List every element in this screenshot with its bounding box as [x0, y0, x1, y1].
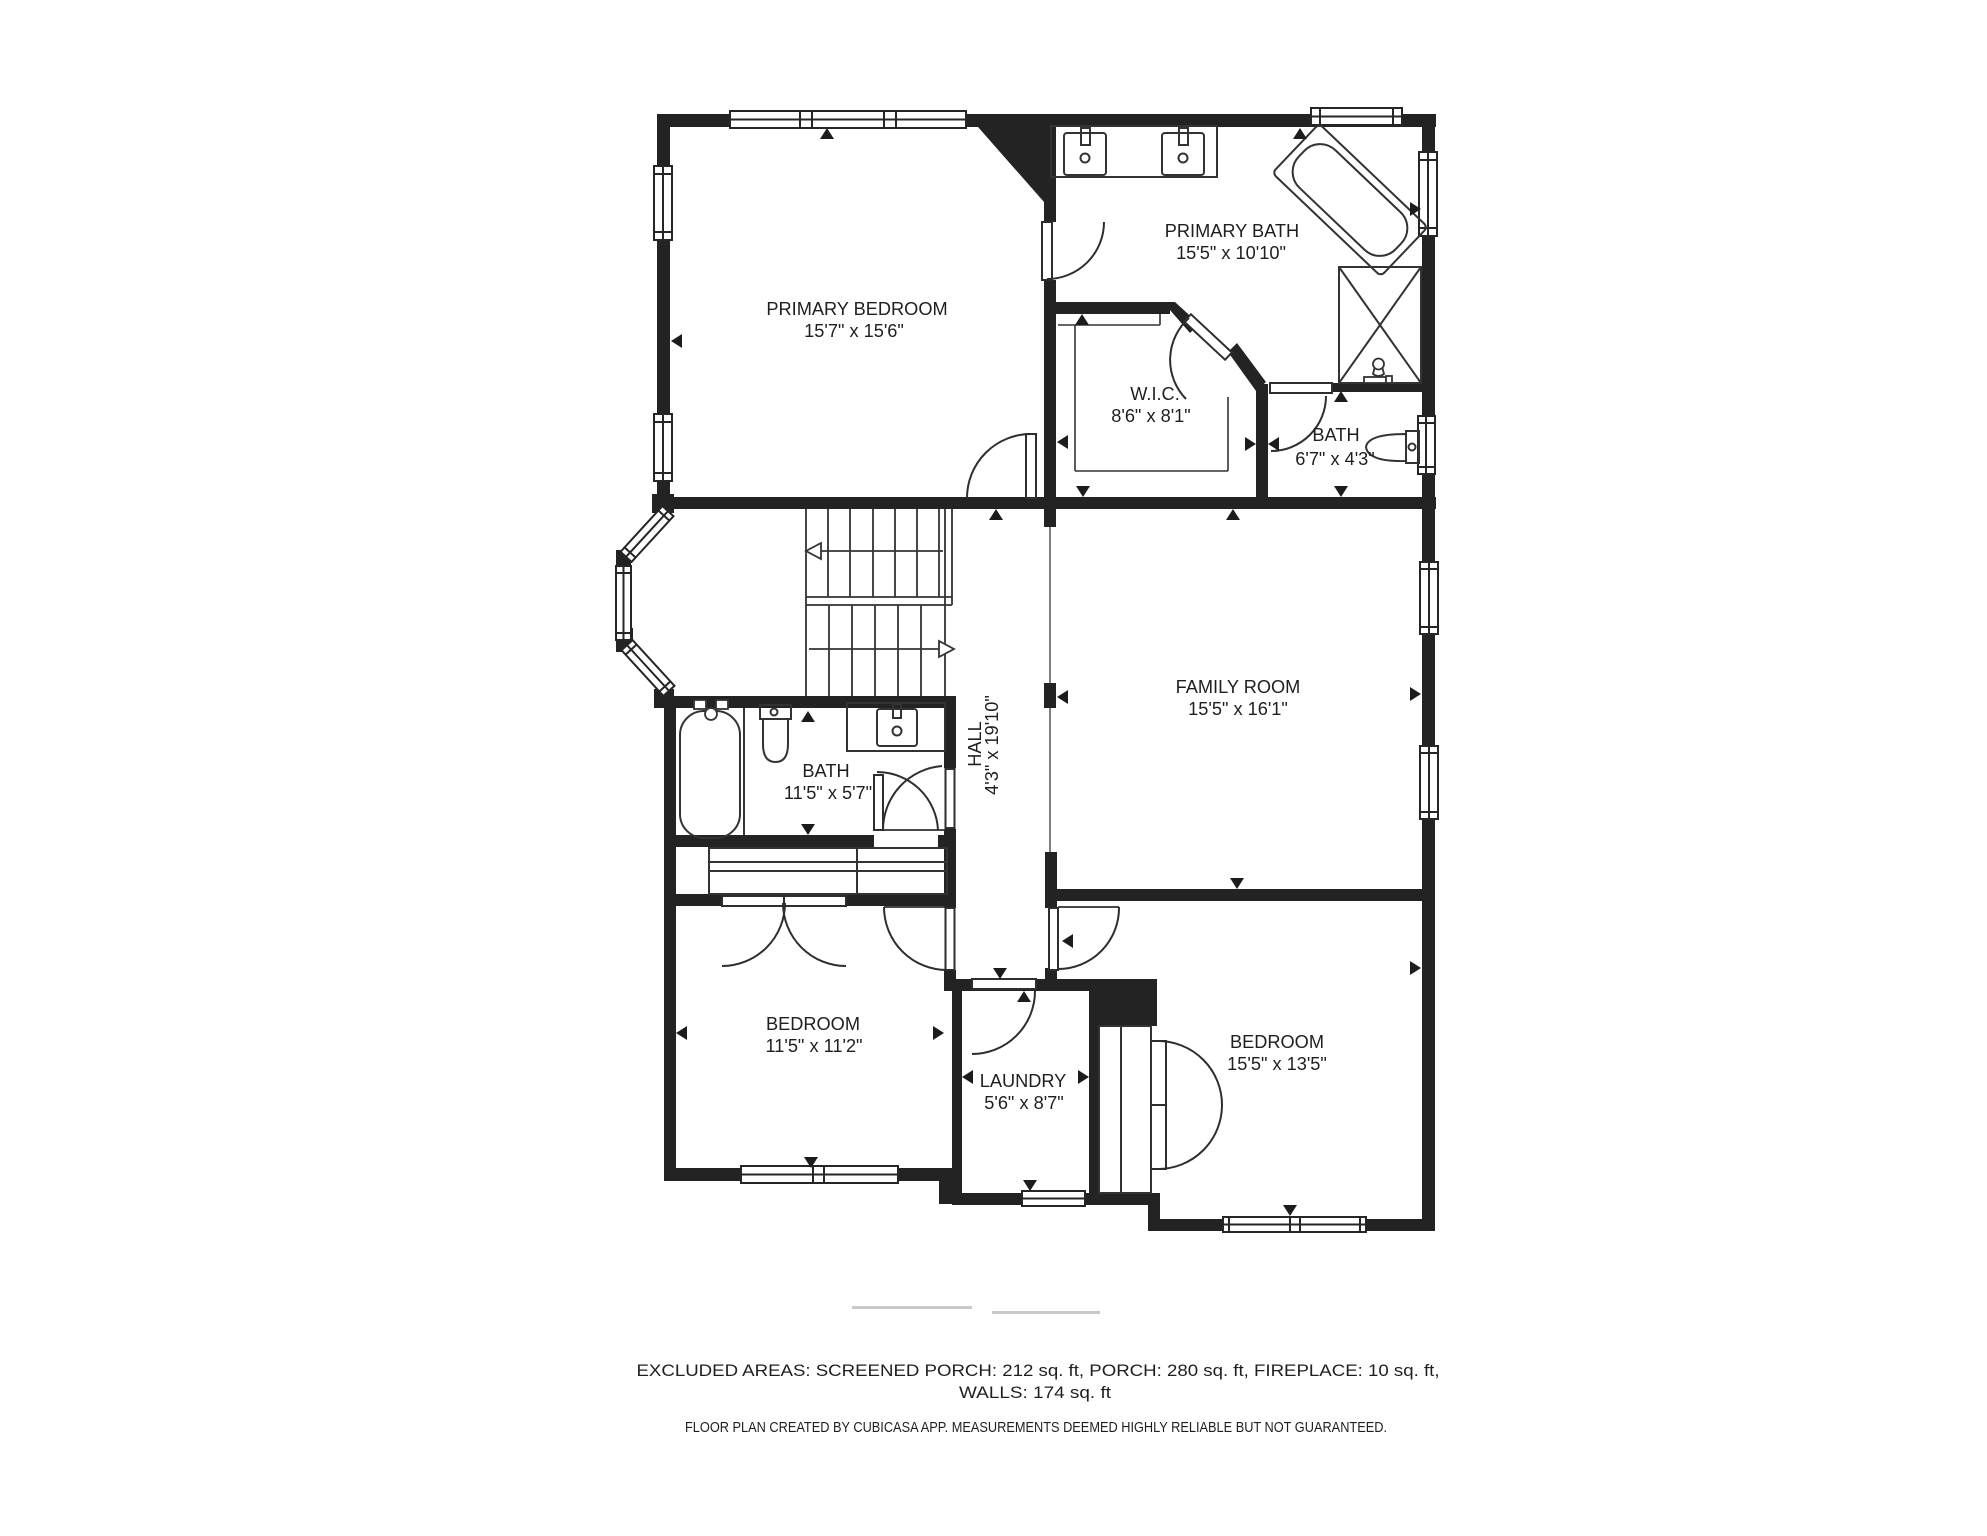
svg-text:15'7" x 15'6": 15'7" x 15'6": [804, 321, 904, 341]
svg-text:11'5" x 5'7": 11'5" x 5'7": [784, 783, 872, 803]
svg-text:15'5" x 10'10": 15'5" x 10'10": [1176, 243, 1286, 263]
svg-text:PRIMARY BEDROOM: PRIMARY BEDROOM: [766, 299, 947, 319]
svg-text:15'5" x 16'1": 15'5" x 16'1": [1188, 699, 1288, 719]
svg-text:11'5" x 11'2": 11'5" x 11'2": [765, 1036, 862, 1056]
svg-text:FAMILY ROOM: FAMILY ROOM: [1176, 677, 1301, 697]
svg-text:BEDROOM: BEDROOM: [766, 1014, 860, 1034]
svg-text:W.I.C.: W.I.C.: [1130, 384, 1180, 404]
svg-text:5'6" x 8'7": 5'6" x 8'7": [984, 1093, 1064, 1113]
svg-text:LAUNDRY: LAUNDRY: [980, 1071, 1067, 1091]
svg-text:6'7" x 4'3": 6'7" x 4'3": [1295, 449, 1375, 469]
svg-text:BATH: BATH: [802, 761, 849, 781]
svg-text:WALLS: 174 sq. ft: WALLS: 174 sq. ft: [959, 1383, 1111, 1402]
svg-text:4'3" x 19'10": 4'3" x 19'10": [982, 695, 1002, 795]
svg-text:15'5" x 13'5": 15'5" x 13'5": [1227, 1054, 1327, 1074]
svg-text:EXCLUDED AREAS: SCREENED PORCH: EXCLUDED AREAS: SCREENED PORCH: 212 sq. …: [637, 1361, 1440, 1380]
svg-text:PRIMARY BATH: PRIMARY BATH: [1165, 221, 1299, 241]
svg-text:FLOOR PLAN CREATED BY CUBICASA: FLOOR PLAN CREATED BY CUBICASA APP. MEAS…: [685, 1419, 1387, 1436]
svg-text:BEDROOM: BEDROOM: [1230, 1032, 1324, 1052]
svg-text:8'6" x 8'1": 8'6" x 8'1": [1111, 406, 1191, 426]
svg-text:BATH: BATH: [1312, 425, 1359, 445]
